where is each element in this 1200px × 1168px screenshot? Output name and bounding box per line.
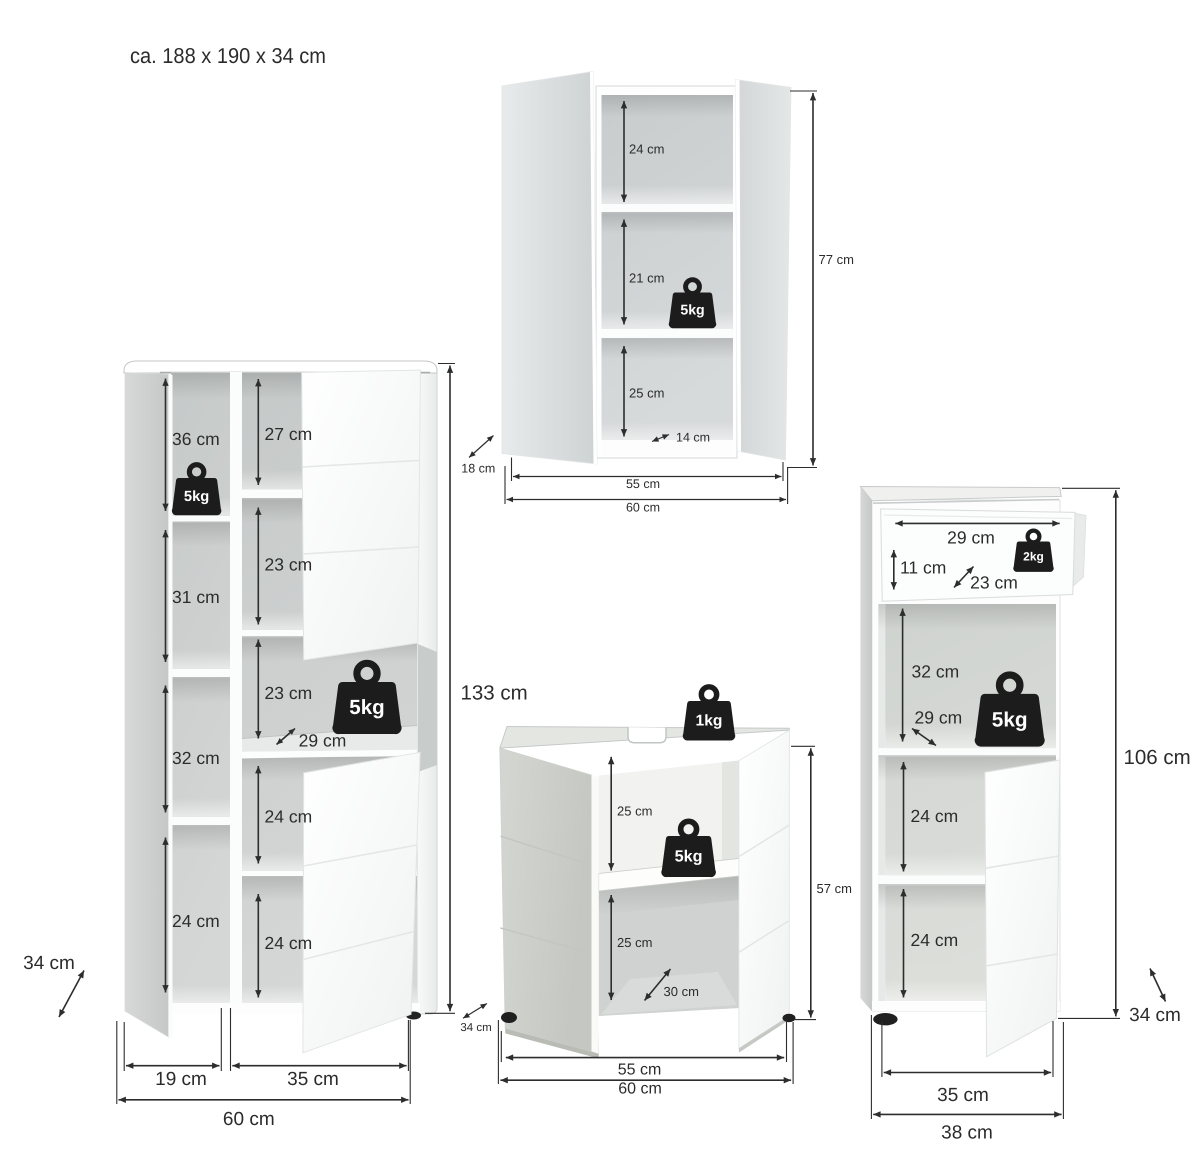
svg-text:5kg: 5kg — [675, 847, 703, 865]
svg-text:29 cm: 29 cm — [299, 731, 347, 751]
svg-text:23 cm: 23 cm — [970, 573, 1018, 593]
svg-text:55 cm: 55 cm — [618, 1062, 662, 1079]
svg-text:60 cm: 60 cm — [626, 501, 660, 515]
svg-text:24 cm: 24 cm — [265, 933, 313, 953]
svg-text:34 cm: 34 cm — [1129, 1005, 1181, 1026]
svg-text:106 cm: 106 cm — [1124, 746, 1191, 769]
svg-text:5kg: 5kg — [992, 708, 1028, 731]
svg-text:55 cm: 55 cm — [626, 477, 660, 491]
svg-text:36 cm: 36 cm — [172, 429, 220, 449]
svg-text:ca. 188 x 190 x 34 cm: ca. 188 x 190 x 34 cm — [130, 44, 326, 68]
svg-text:5kg: 5kg — [184, 488, 209, 504]
svg-text:34 cm: 34 cm — [460, 1022, 491, 1034]
svg-text:38 cm: 38 cm — [941, 1123, 993, 1144]
svg-text:5kg: 5kg — [349, 696, 384, 719]
svg-text:34 cm: 34 cm — [23, 953, 75, 974]
svg-text:14 cm: 14 cm — [676, 430, 710, 444]
svg-text:24 cm: 24 cm — [265, 807, 313, 827]
svg-text:32 cm: 32 cm — [912, 662, 960, 682]
svg-text:23 cm: 23 cm — [265, 555, 313, 575]
svg-text:24 cm: 24 cm — [911, 930, 959, 950]
svg-text:60 cm: 60 cm — [223, 1109, 275, 1130]
svg-text:31 cm: 31 cm — [172, 587, 220, 607]
svg-text:29 cm: 29 cm — [947, 528, 995, 548]
svg-text:24 cm: 24 cm — [911, 806, 959, 826]
svg-text:60 cm: 60 cm — [618, 1081, 662, 1098]
svg-text:25 cm: 25 cm — [629, 386, 664, 401]
svg-text:27 cm: 27 cm — [265, 424, 313, 444]
svg-text:133 cm: 133 cm — [461, 682, 528, 705]
svg-text:29 cm: 29 cm — [915, 708, 963, 728]
svg-text:1kg: 1kg — [696, 712, 723, 729]
svg-text:2kg: 2kg — [1023, 550, 1044, 563]
svg-text:5kg: 5kg — [680, 302, 704, 318]
svg-text:77 cm: 77 cm — [819, 252, 854, 267]
svg-text:32 cm: 32 cm — [172, 748, 220, 768]
svg-text:57 cm: 57 cm — [817, 881, 852, 896]
svg-text:24 cm: 24 cm — [172, 911, 220, 931]
svg-text:18 cm: 18 cm — [461, 461, 495, 475]
svg-text:24 cm: 24 cm — [629, 141, 664, 156]
svg-text:35 cm: 35 cm — [937, 1085, 989, 1106]
svg-text:25 cm: 25 cm — [617, 935, 652, 950]
svg-text:21 cm: 21 cm — [629, 271, 664, 286]
svg-text:30 cm: 30 cm — [664, 984, 699, 999]
svg-text:11 cm: 11 cm — [900, 558, 946, 578]
svg-text:23 cm: 23 cm — [265, 683, 313, 703]
svg-text:25 cm: 25 cm — [617, 803, 652, 818]
svg-text:19 cm: 19 cm — [155, 1069, 207, 1090]
svg-text:35 cm: 35 cm — [287, 1069, 339, 1090]
